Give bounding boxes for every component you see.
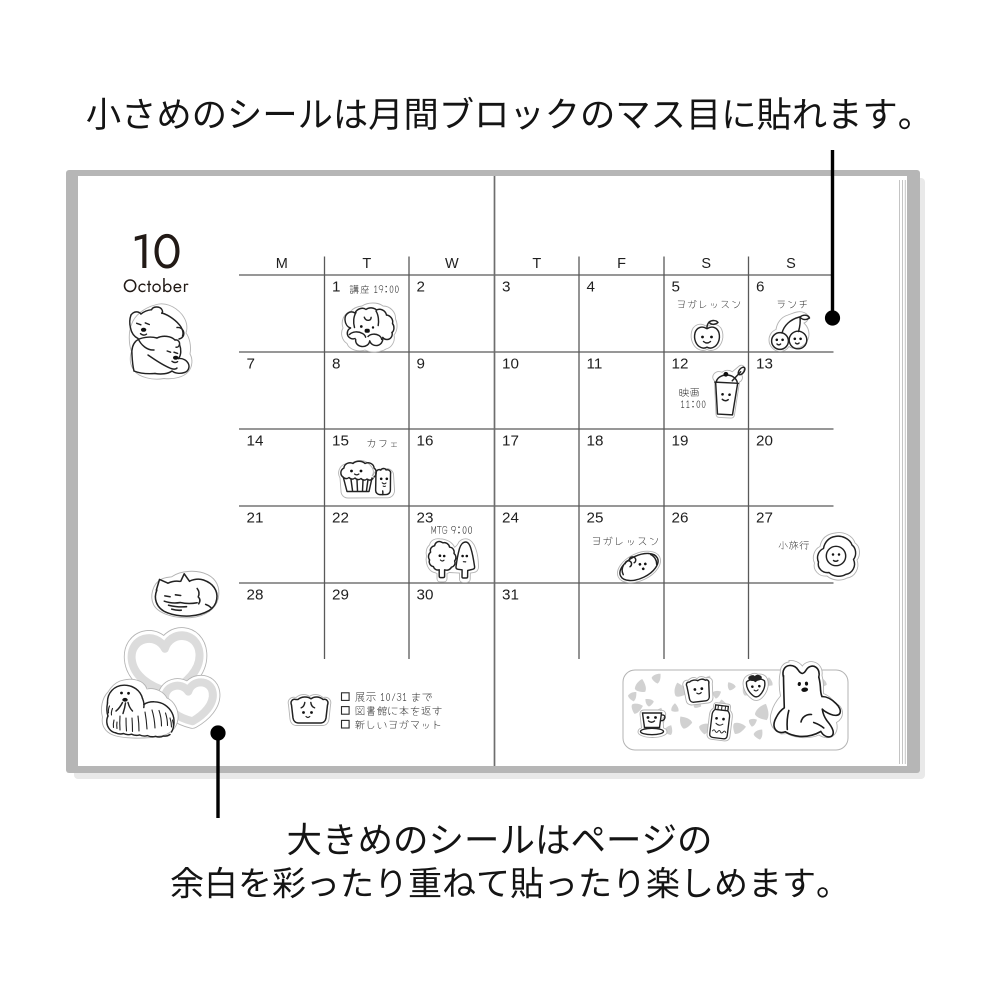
svg-text:4: 4 [587, 278, 595, 295]
svg-text:F: F [617, 256, 626, 272]
svg-text:17: 17 [502, 432, 519, 449]
svg-text:1: 1 [332, 278, 340, 295]
svg-text:30: 30 [417, 586, 434, 603]
svg-text:3: 3 [502, 278, 510, 295]
svg-text:8: 8 [332, 355, 340, 372]
svg-text:20: 20 [756, 432, 773, 449]
svg-text:6: 6 [756, 278, 764, 295]
svg-text:26: 26 [672, 509, 689, 526]
svg-text:19: 19 [672, 432, 689, 449]
svg-text:15: 15 [332, 432, 349, 449]
svg-text:9: 9 [417, 355, 425, 372]
svg-text:13: 13 [756, 355, 773, 372]
svg-text:25: 25 [587, 509, 604, 526]
svg-text:28: 28 [247, 586, 264, 603]
svg-text:24: 24 [502, 509, 519, 526]
svg-text:S: S [701, 256, 711, 272]
svg-text:5: 5 [672, 278, 680, 295]
svg-text:11: 11 [587, 355, 603, 372]
svg-text:31: 31 [502, 586, 519, 603]
svg-text:2: 2 [417, 278, 425, 295]
svg-text:10: 10 [502, 355, 519, 372]
svg-text:W: W [445, 256, 459, 272]
svg-text:T: T [532, 256, 541, 272]
svg-text:S: S [786, 256, 796, 272]
svg-text:14: 14 [247, 432, 264, 449]
svg-text:M: M [276, 256, 288, 272]
svg-text:12: 12 [672, 355, 689, 372]
svg-text:16: 16 [417, 432, 434, 449]
svg-text:23: 23 [417, 509, 434, 526]
svg-text:21: 21 [247, 509, 264, 526]
svg-text:27: 27 [756, 509, 773, 526]
svg-text:29: 29 [332, 586, 349, 603]
svg-text:22: 22 [332, 509, 349, 526]
svg-text:T: T [362, 256, 371, 272]
svg-text:18: 18 [587, 432, 604, 449]
svg-text:7: 7 [247, 355, 255, 372]
